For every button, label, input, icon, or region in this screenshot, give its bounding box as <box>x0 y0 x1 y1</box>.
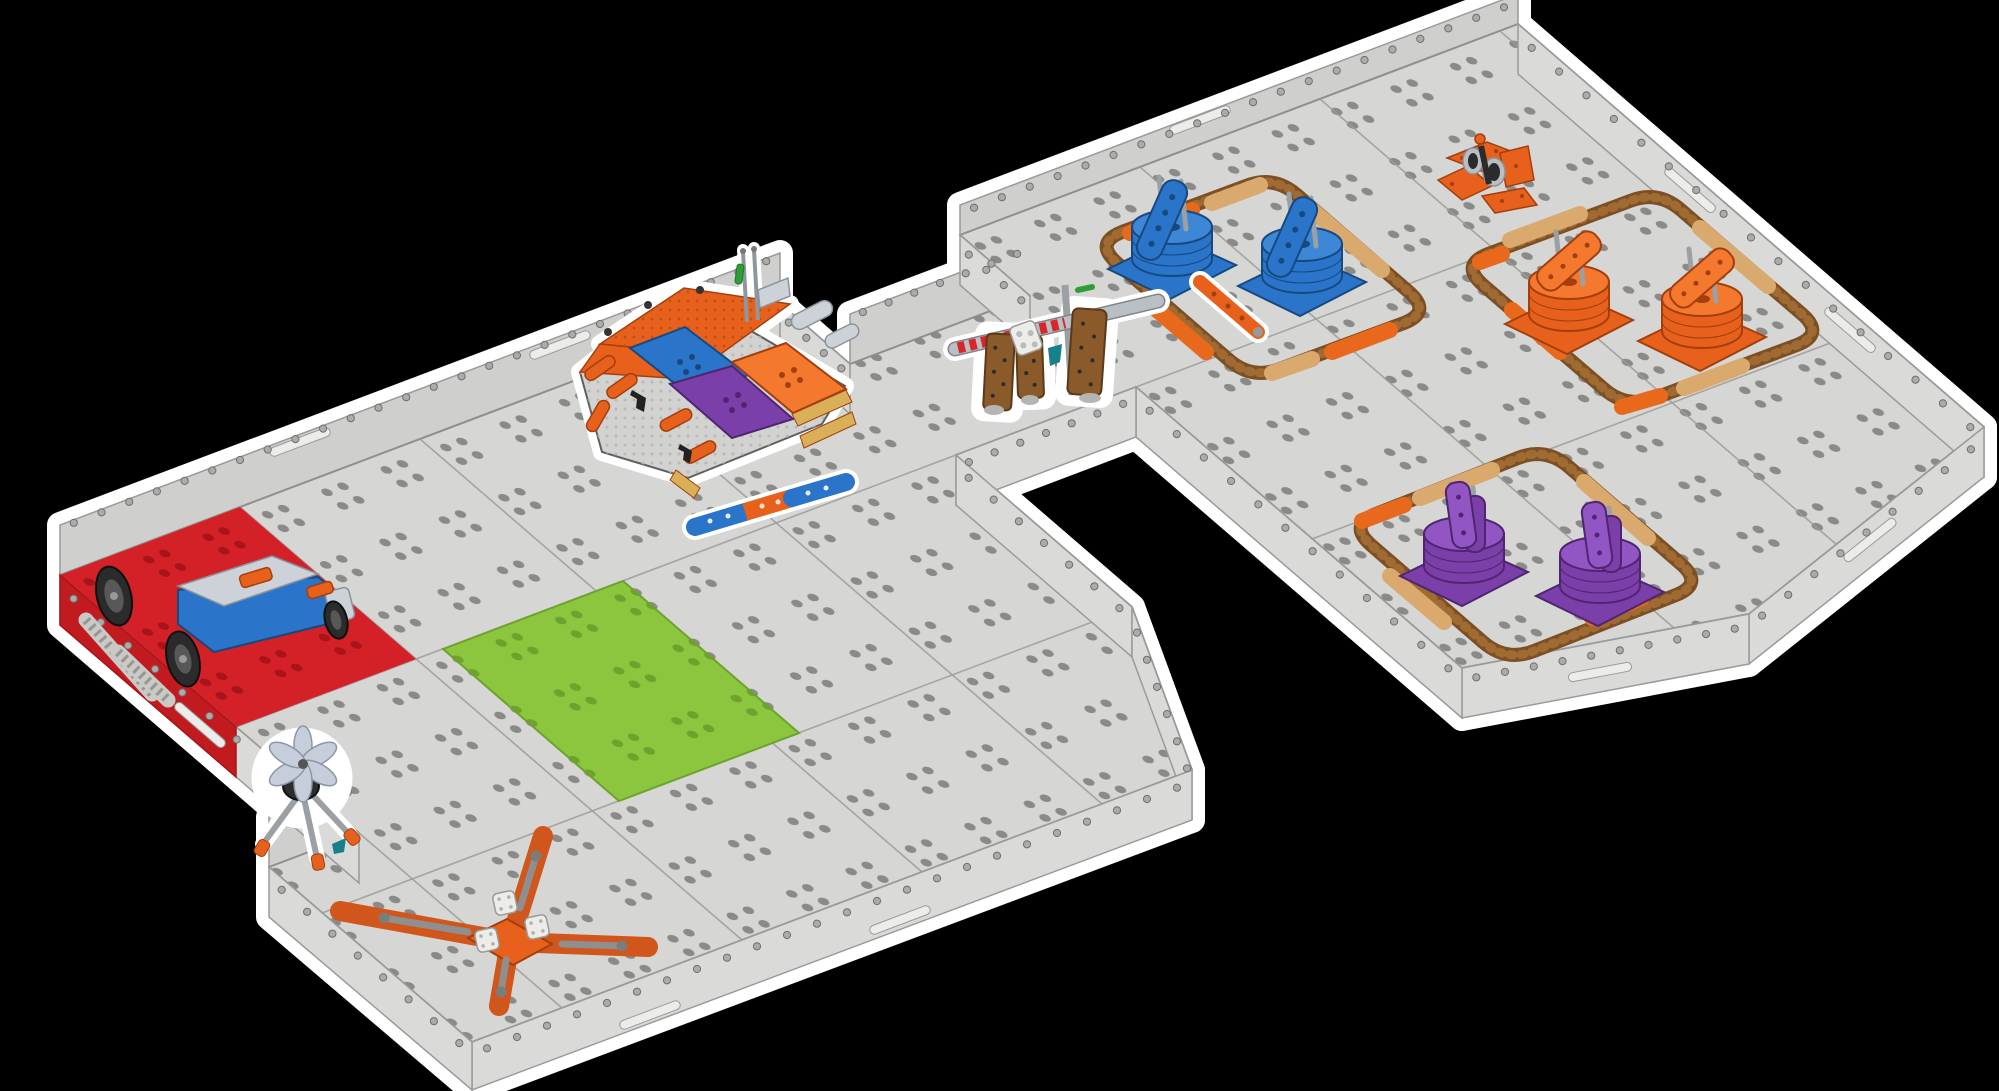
wall-rivet <box>603 999 610 1006</box>
wall-rivet <box>70 519 77 526</box>
wall-rivet <box>320 425 327 432</box>
wall-rivet <box>1333 67 1340 74</box>
wall-rivet <box>1138 141 1145 148</box>
wall-rivet <box>962 270 969 277</box>
wall-rivet <box>820 350 827 357</box>
wall-rivet <box>993 852 1000 859</box>
wall-rivet <box>1143 656 1150 663</box>
wall-rivet <box>430 1018 437 1025</box>
wall-rivet <box>813 920 820 927</box>
wall-rivet <box>843 909 850 916</box>
wall-rivet <box>1249 99 1256 106</box>
wall-rivet <box>1113 807 1120 814</box>
wall-rivet <box>783 931 790 938</box>
wall-rivet <box>693 965 700 972</box>
wall-rivet <box>375 404 382 411</box>
wall-rivet <box>596 320 603 327</box>
x-connector-cube <box>524 914 550 940</box>
wall-rivet <box>292 436 299 443</box>
wall-rivet <box>573 1011 580 1018</box>
wall-rivet <box>933 875 940 882</box>
wall-rivet <box>513 1033 520 1040</box>
wall-rivet <box>753 943 760 950</box>
wall-rivet <box>1116 605 1123 612</box>
wall-rivet <box>126 498 133 505</box>
wall-rivet <box>859 309 866 316</box>
wall-rivet <box>456 1040 463 1047</box>
wall-rivet <box>1083 818 1090 825</box>
wall-rivet <box>1967 446 1974 453</box>
field-scene: Isometric render of a modular robotics c… <box>0 0 1999 1091</box>
wall-rivet <box>1912 376 1919 383</box>
wall-rivet <box>838 365 845 372</box>
wall-rivet <box>1759 612 1766 619</box>
wall-rivet <box>1473 674 1480 681</box>
wall-rivet <box>963 863 970 870</box>
wall-rivet <box>936 279 943 286</box>
wall-rivet <box>873 897 880 904</box>
wall-rivet <box>763 258 770 265</box>
wall-rivet <box>1638 139 1645 146</box>
wall-rivet <box>1665 163 1672 170</box>
wall-rivet <box>1082 162 1089 169</box>
wall-rivet <box>1674 636 1681 643</box>
wall-rivet <box>1830 305 1837 312</box>
wall-rivet <box>380 974 387 981</box>
wall-rivet <box>1391 618 1398 625</box>
gate-foot <box>1079 393 1101 403</box>
wall-rivet <box>633 988 640 995</box>
wall-rivet <box>1305 78 1312 85</box>
wall-rivet <box>513 352 520 359</box>
wall-rivet <box>1200 454 1207 461</box>
wall-rivet <box>98 509 105 516</box>
wall-rivet <box>1889 508 1896 515</box>
wall-rivet <box>1153 683 1160 690</box>
wall-rivet <box>723 954 730 961</box>
wall-rivet <box>206 712 213 719</box>
wall-rivet <box>1361 56 1368 63</box>
wall-rivet <box>911 289 918 296</box>
wall-rivet <box>1775 258 1782 265</box>
wall-rivet <box>983 266 990 273</box>
gate-brown-panel-right <box>1067 308 1107 396</box>
wall-rivet <box>990 496 997 503</box>
gate-brown-panel-left <box>983 333 1015 410</box>
gate-foot <box>984 405 1004 415</box>
wall-rivet <box>965 459 972 466</box>
wall-rivet <box>1445 665 1452 672</box>
wall-rivet <box>1530 663 1537 670</box>
wall-rivet <box>304 908 311 915</box>
wall-rivet <box>1702 631 1709 638</box>
wall-rivet <box>1255 501 1262 508</box>
wall-rivet <box>965 474 972 481</box>
wall-rivet <box>1588 652 1595 659</box>
wall-rivet <box>1720 210 1727 217</box>
wall-rivet <box>1133 629 1140 636</box>
wall-rivet <box>1967 424 1974 431</box>
wall-rivet <box>1336 571 1343 578</box>
wall-rivet <box>1857 329 1864 336</box>
wall-rivet <box>541 341 548 348</box>
wall-rivet <box>1500 4 1507 11</box>
wall-rivet <box>1091 583 1098 590</box>
wall-rivet <box>1418 641 1425 648</box>
wall-rivet <box>1014 250 1021 257</box>
wall-rivet <box>179 689 186 696</box>
wall-rivet <box>1610 115 1617 122</box>
wall-rivet <box>1183 765 1190 772</box>
wall-rivet <box>991 449 998 456</box>
wall-rivet <box>1939 400 1946 407</box>
wall-rivet <box>1528 44 1535 51</box>
wall-rivet <box>1094 410 1101 417</box>
wall-rivet <box>1785 591 1792 598</box>
wall-rivet <box>1802 281 1809 288</box>
wall-rivet <box>403 394 410 401</box>
wall-rivet <box>1018 297 1025 304</box>
wall-rivet <box>1731 625 1738 632</box>
wall-rivet <box>1556 68 1563 75</box>
wall-rivet <box>181 477 188 484</box>
wall-rivet <box>1023 841 1030 848</box>
wall-rivet <box>209 467 216 474</box>
wall-rivet <box>998 194 1005 201</box>
wall-rivet <box>1747 234 1754 241</box>
wall-rivet <box>1389 46 1396 53</box>
x-connector-cube <box>492 890 518 916</box>
wall-rivet <box>1221 109 1228 116</box>
wall-rivet <box>1163 711 1170 718</box>
wall-rivet <box>1837 550 1844 557</box>
wall-rivet <box>543 1022 550 1029</box>
wall-rivet <box>233 736 240 743</box>
wall-rivet <box>1042 429 1049 436</box>
wall-rivet <box>458 373 465 380</box>
x-connector-cube <box>474 927 500 953</box>
wall-rivet <box>1026 183 1033 190</box>
wall-rivet <box>1473 14 1480 21</box>
wall-rivet <box>1173 431 1180 438</box>
wall-rivet <box>1309 548 1316 555</box>
wall-rivet <box>278 886 285 893</box>
wall-rivet <box>1066 561 1073 568</box>
wall-rivet <box>1417 35 1424 42</box>
wall-rivet <box>1120 400 1127 407</box>
wall-rivet <box>1941 467 1948 474</box>
wall-rivet <box>1110 151 1117 158</box>
wall-rivet <box>347 415 354 422</box>
wall-rivet <box>1645 641 1652 648</box>
gate-foot <box>1021 395 1039 405</box>
wall-rivet <box>264 446 271 453</box>
wall-rivet <box>405 996 412 1003</box>
wall-rivet <box>1445 25 1452 32</box>
wall-rivet <box>153 488 160 495</box>
wall-rivet <box>486 362 493 369</box>
wall-rivet <box>483 1045 490 1052</box>
wall-rivet <box>236 456 243 463</box>
wall-rivet <box>1143 795 1150 802</box>
wall-rivet <box>1863 529 1870 536</box>
wall-rivet <box>1559 658 1566 665</box>
wall-rivet <box>124 642 131 649</box>
wall-rivet <box>1068 420 1075 427</box>
wall-rivet <box>1915 487 1922 494</box>
wall-rivet <box>1173 738 1180 745</box>
wall-rivet <box>1053 829 1060 836</box>
wall-rivet <box>1811 571 1818 578</box>
wall-rivet <box>152 666 159 673</box>
wall-rivet <box>1173 784 1180 791</box>
wall-rivet <box>1015 518 1022 525</box>
wall-rivet <box>430 383 437 390</box>
wall-rivet <box>1194 120 1201 127</box>
tripod-foot <box>311 853 326 871</box>
wall-rivet <box>1146 407 1153 414</box>
wall-rivet <box>1885 352 1892 359</box>
wall-rivet <box>970 204 977 211</box>
wall-rivet <box>663 977 670 984</box>
wall-rivet <box>70 595 77 602</box>
wall-rivet <box>1228 477 1235 484</box>
wall-rivet <box>1693 187 1700 194</box>
wall-rivet <box>569 331 576 338</box>
wall-rivet <box>1017 439 1024 446</box>
wall-rivet <box>1166 130 1173 137</box>
wall-rivet <box>803 334 810 341</box>
gate-green-pin <box>1078 287 1092 290</box>
wall-rivet <box>1363 594 1370 601</box>
wall-rivet <box>1000 282 1007 289</box>
wall-rivet <box>1282 524 1289 531</box>
wall-rivet <box>1501 668 1508 675</box>
wall-rivet <box>1054 173 1061 180</box>
wall-rivet <box>1616 647 1623 654</box>
wall-rivet <box>329 930 336 937</box>
wall-rivet <box>885 299 892 306</box>
wall-rivet <box>965 251 972 258</box>
wall-rivet <box>354 952 361 959</box>
wall-rivet <box>1040 539 1047 546</box>
wall-rivet <box>903 886 910 893</box>
wall-rivet <box>988 260 995 267</box>
field-render: Isometric render of a modular robotics c… <box>0 0 1999 1091</box>
wall-rivet <box>1583 92 1590 99</box>
winch-knob <box>1475 134 1485 144</box>
wall-rivet <box>1277 88 1284 95</box>
